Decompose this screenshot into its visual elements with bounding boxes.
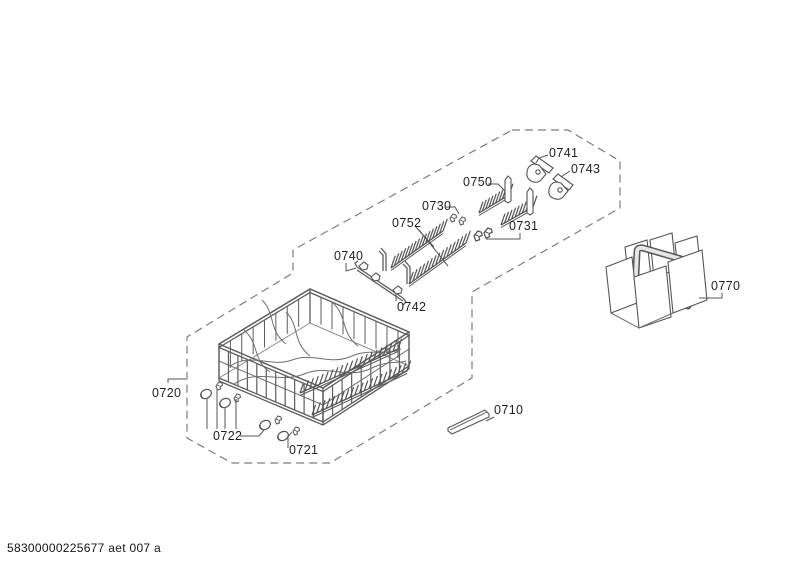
part-label-0752: 0752 [392,217,421,230]
part-label-0731: 0731 [509,220,538,233]
exploded-view-drawing [0,0,800,566]
part-label-0742: 0742 [397,301,426,314]
cutlery-basket [606,233,707,328]
part-label-0710: 0710 [494,404,523,417]
rail-strip-0710 [448,410,489,434]
part-label-0741: 0741 [549,147,578,160]
document-code: 58300000225677 aet 007 a [7,541,161,555]
part-label-0740: 0740 [334,250,363,263]
parts-diagram-page: 0741 0743 0750 0730 0752 0731 0740 0742 … [0,0,800,566]
part-label-0730: 0730 [422,200,451,213]
rail-0740 [355,261,406,305]
part-label-0770: 0770 [711,280,740,293]
bracket-0743 [549,174,573,199]
part-label-0722: 0722 [213,430,242,443]
part-label-0743: 0743 [571,163,600,176]
part-label-0720: 0720 [152,387,181,400]
part-label-0750: 0750 [463,176,492,189]
part-label-0721: 0721 [289,444,318,457]
